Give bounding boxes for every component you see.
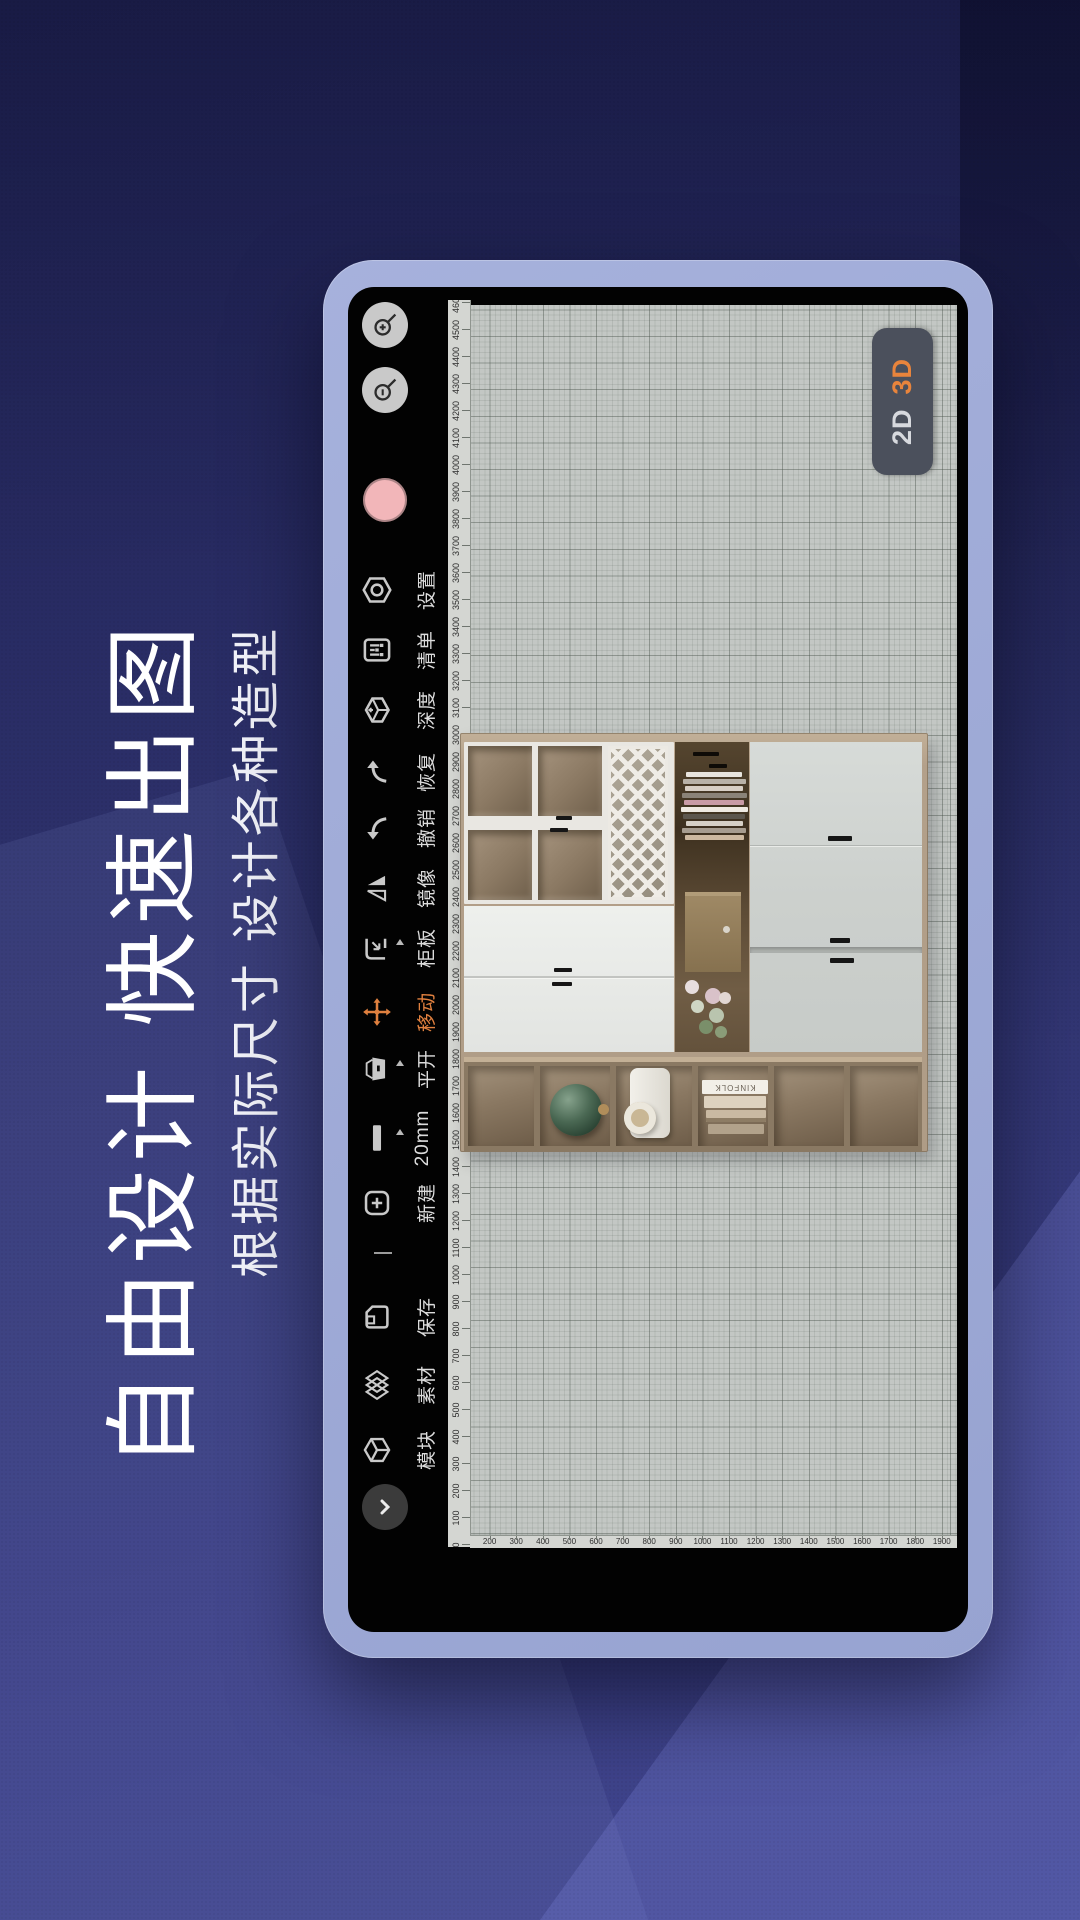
ruler-label: 4600 bbox=[451, 300, 461, 313]
door-handle bbox=[828, 836, 852, 841]
cabinet-white-doors bbox=[464, 906, 674, 1052]
ruler-tick bbox=[942, 1536, 943, 1540]
decor-tape-roll bbox=[624, 1102, 656, 1134]
ruler-label: 500 bbox=[451, 1402, 461, 1417]
ruler-tick bbox=[462, 329, 470, 330]
toolbar-item-mirror[interactable]: 镜像 bbox=[348, 855, 448, 921]
ruler-tick bbox=[462, 437, 470, 438]
ruler-tick bbox=[516, 1536, 517, 1540]
flower bbox=[719, 992, 731, 1004]
move-icon bbox=[362, 995, 396, 1029]
door-icon bbox=[362, 1052, 396, 1086]
undo-icon bbox=[362, 811, 396, 845]
redo-icon bbox=[362, 755, 396, 789]
depth-icon bbox=[362, 693, 396, 727]
ruler-tick bbox=[462, 491, 470, 492]
book-spine bbox=[685, 835, 744, 840]
book-spine bbox=[683, 814, 745, 819]
ruler-tick bbox=[862, 1536, 863, 1540]
decor-book: KINFOLK bbox=[702, 1080, 768, 1094]
open-compartment bbox=[468, 746, 532, 816]
ruler-label: 3200 bbox=[451, 671, 461, 691]
ruler-tick bbox=[462, 1382, 470, 1383]
closet-rail bbox=[693, 752, 719, 756]
ruler-tick bbox=[756, 1536, 757, 1540]
flower bbox=[709, 1008, 724, 1023]
hero-subtitle: 根据实际尺寸 设计各种造型 bbox=[228, 618, 286, 1278]
open-compartment bbox=[538, 746, 602, 816]
ruler-label: 3900 bbox=[451, 482, 461, 502]
toolbar-item-label: 平开 bbox=[412, 1049, 439, 1089]
ruler-tick bbox=[462, 1355, 470, 1356]
ruler-tick bbox=[649, 1536, 650, 1540]
layers-icon bbox=[362, 1368, 396, 1402]
ruler-tick bbox=[462, 626, 470, 627]
toolbar-item-list[interactable]: 清单 bbox=[348, 617, 448, 683]
cubby bbox=[850, 1066, 918, 1146]
door-handle bbox=[552, 982, 572, 986]
color-swatch[interactable] bbox=[363, 478, 407, 522]
toolbar-item-material[interactable]: 素材 bbox=[348, 1352, 448, 1418]
board-icon bbox=[362, 1121, 396, 1155]
toolbar-item-redo[interactable]: 恢复 bbox=[348, 739, 448, 805]
ruler-label: 100 bbox=[451, 1510, 461, 1525]
ruler-label: 4100 bbox=[451, 428, 461, 448]
toolbar-item-label: 设置 bbox=[412, 570, 439, 610]
book-spine bbox=[686, 821, 743, 826]
toolbar-item-label: 20mm bbox=[412, 1110, 434, 1167]
ruler-label: 0 bbox=[451, 1542, 461, 1547]
toolbar-item-label: 新建 bbox=[412, 1183, 439, 1223]
ruler-tick bbox=[462, 707, 470, 708]
ruler-label: 300 bbox=[451, 1456, 461, 1471]
expand-marker-icon bbox=[396, 939, 404, 945]
ruler-label: 3700 bbox=[451, 536, 461, 556]
view-mode-toggle[interactable]: 2D3D bbox=[872, 328, 933, 475]
ruler-tick bbox=[462, 1409, 470, 1410]
book-spine bbox=[681, 807, 748, 812]
drawer-knob bbox=[723, 926, 730, 933]
ruler-tick bbox=[809, 1536, 810, 1540]
ruler-tick bbox=[462, 464, 470, 465]
ruler-label: 3600 bbox=[451, 563, 461, 583]
ruler-tick bbox=[835, 1536, 836, 1540]
ruler-tick bbox=[596, 1536, 597, 1540]
toolbar-item-label: 保存 bbox=[412, 1297, 439, 1337]
ruler-tick bbox=[462, 599, 470, 600]
ruler-tick bbox=[462, 1301, 470, 1302]
zoom-in-button[interactable] bbox=[362, 302, 408, 348]
ruler-tick bbox=[462, 1274, 470, 1275]
ruler-label: 600 bbox=[451, 1375, 461, 1390]
ruler-label: 1300 bbox=[451, 1184, 461, 1204]
cabinet-upper-unit bbox=[464, 742, 674, 904]
ruler-tick bbox=[915, 1536, 916, 1540]
toolbar-item-move[interactable]: 移动 bbox=[348, 979, 448, 1045]
flower bbox=[691, 1000, 704, 1013]
toolbar-item-label: 清单 bbox=[412, 630, 439, 670]
door-handle bbox=[830, 938, 850, 943]
ruler-tick bbox=[462, 1166, 470, 1167]
ruler-label: 1100 bbox=[451, 1238, 461, 1257]
toolbar-item-label: 移动 bbox=[412, 992, 439, 1032]
ruler-label: 1200 bbox=[451, 1211, 461, 1231]
book-spine bbox=[684, 800, 744, 805]
floppy-icon bbox=[362, 1300, 396, 1334]
ruler-tick bbox=[462, 1544, 470, 1545]
flower bbox=[699, 1020, 713, 1034]
ruler-label: 3800 bbox=[451, 509, 461, 529]
panel-icon bbox=[362, 931, 396, 965]
ruler-label: 3300 bbox=[451, 644, 461, 664]
ruler-label: 400 bbox=[451, 1429, 461, 1444]
ruler-tick bbox=[462, 1517, 470, 1518]
toolbar-item-label: 镜像 bbox=[412, 868, 439, 908]
view-mode-2d[interactable]: 2D bbox=[887, 409, 918, 446]
ruler-label: 700 bbox=[451, 1348, 461, 1363]
toolbar-item-label: 深度 bbox=[412, 690, 439, 730]
settings-icon bbox=[362, 573, 396, 607]
ruler-tick bbox=[462, 572, 470, 573]
ruler-label: 200 bbox=[451, 1483, 461, 1498]
ruler-label: 4000 bbox=[451, 455, 461, 475]
flower bbox=[715, 1026, 727, 1038]
decor-book bbox=[704, 1096, 766, 1108]
ruler-tick bbox=[462, 410, 470, 411]
toolbar-item-new[interactable]: 新建 bbox=[348, 1170, 448, 1236]
toolbar-item-label: 柜板 bbox=[412, 928, 439, 968]
cabinet-render[interactable]: KINFOLK bbox=[460, 733, 928, 1152]
ruler-tick bbox=[543, 1536, 544, 1540]
ruler-label: 800 bbox=[451, 1321, 461, 1336]
toolbar-item-label: 恢复 bbox=[412, 752, 439, 792]
ruler-tick bbox=[889, 1536, 890, 1540]
hero-title: 自由设计 快速出图 bbox=[98, 533, 210, 1468]
ruler-tick bbox=[462, 545, 470, 546]
ruler-label: 4500 bbox=[451, 320, 461, 340]
expand-marker-icon bbox=[396, 1129, 404, 1135]
ruler-tick bbox=[462, 302, 470, 303]
ruler-tick bbox=[782, 1536, 783, 1540]
ruler-label: 4400 bbox=[451, 347, 461, 367]
phone-mockup: 0100200300400500600700800900100011001200… bbox=[323, 260, 993, 1658]
ruler-tick bbox=[462, 1328, 470, 1329]
ruler-label: 4200 bbox=[451, 401, 461, 421]
ruler-tick bbox=[490, 1536, 491, 1540]
door-divider bbox=[464, 976, 674, 978]
toolbar-group-divider bbox=[374, 1252, 392, 1254]
ruler-tick bbox=[623, 1536, 624, 1540]
collapse-toolbar-button[interactable] bbox=[362, 1484, 408, 1530]
book-spine bbox=[686, 772, 742, 777]
ruler-tick bbox=[569, 1536, 570, 1540]
list-icon bbox=[362, 633, 396, 667]
door-handle bbox=[830, 958, 854, 963]
ruler-tick bbox=[462, 1490, 470, 1491]
ruler-label: 1400 bbox=[451, 1157, 461, 1177]
view-mode-3d[interactable]: 3D bbox=[887, 358, 918, 395]
expand-marker-icon bbox=[396, 1060, 404, 1066]
mirror-icon bbox=[362, 871, 396, 905]
wardrobe-divider bbox=[750, 845, 922, 846]
toolbar-item-label: 素材 bbox=[412, 1365, 439, 1405]
app-screen: 0100200300400500600700800900100011001200… bbox=[348, 287, 968, 1632]
toolbar: 模块素材保存新建20mm平开移动柜板镜像撤销恢复深度清单设置 bbox=[348, 287, 448, 1632]
cabinet-open-middle bbox=[675, 742, 749, 1052]
decor-globe-stand bbox=[598, 1104, 609, 1115]
wine-lattice bbox=[608, 746, 668, 900]
canvas-top-margin bbox=[470, 287, 968, 305]
ruler-label: 900 bbox=[451, 1294, 461, 1309]
ruler-label: 3500 bbox=[451, 590, 461, 610]
open-compartment bbox=[468, 830, 532, 900]
cubby bbox=[774, 1066, 844, 1146]
ruler-tick bbox=[462, 518, 470, 519]
chevron-down-icon bbox=[372, 1494, 398, 1520]
door-handle bbox=[550, 828, 568, 832]
toolbar-item-swing-door[interactable]: 平开 bbox=[348, 1036, 448, 1102]
book-spine bbox=[682, 793, 747, 798]
ruler-tick bbox=[702, 1536, 703, 1540]
ruler-tick bbox=[462, 680, 470, 681]
ruler-tick bbox=[462, 1247, 470, 1248]
decor-book bbox=[708, 1124, 764, 1134]
ruler-label: 1000 bbox=[451, 1265, 461, 1285]
book-spine bbox=[683, 779, 746, 784]
ruler-tick bbox=[676, 1536, 677, 1540]
flower bbox=[685, 980, 699, 994]
toolbar-item-label: 模块 bbox=[412, 1430, 439, 1470]
closet-rail bbox=[709, 764, 727, 768]
open-compartment bbox=[538, 830, 602, 900]
door-handle bbox=[554, 968, 572, 972]
cubby bbox=[468, 1066, 534, 1146]
door-handle bbox=[556, 816, 572, 820]
toolbar-item-save[interactable]: 保存 bbox=[348, 1284, 448, 1350]
book-spine bbox=[685, 786, 743, 791]
toolbar-item-settings[interactable]: 设置 bbox=[348, 557, 448, 623]
ruler-tick bbox=[729, 1536, 730, 1540]
ruler-tick bbox=[462, 653, 470, 654]
ruler-label: 4300 bbox=[451, 374, 461, 394]
height-ruler: 1002003004005006007008009001000110012001… bbox=[470, 1535, 957, 1548]
plus-square-icon bbox=[362, 1186, 396, 1220]
cabinet-wardrobe bbox=[750, 742, 922, 1052]
wardrobe-divider bbox=[750, 947, 922, 953]
ruler-label: 3100 bbox=[451, 698, 461, 718]
ruler-tick bbox=[462, 1463, 470, 1464]
toolbar-item-thickness[interactable]: 20mm bbox=[348, 1105, 448, 1171]
toolbar-item-label: 撤销 bbox=[412, 808, 439, 848]
ruler-tick bbox=[462, 383, 470, 384]
inner-drawer bbox=[685, 892, 741, 972]
decor-book bbox=[706, 1110, 766, 1122]
zoom-out-button[interactable] bbox=[362, 367, 408, 413]
toolbar-item-module[interactable]: 模块 bbox=[348, 1417, 448, 1483]
cabinet-cubby-row: KINFOLK bbox=[464, 1057, 922, 1152]
ruler-tick bbox=[462, 1436, 470, 1437]
cube-icon bbox=[362, 1433, 396, 1467]
ruler-tick bbox=[462, 1193, 470, 1194]
ruler-tick bbox=[462, 356, 470, 357]
toolbar-item-panel[interactable]: 柜板 bbox=[348, 915, 448, 981]
ruler-label: 3400 bbox=[451, 617, 461, 637]
book-spine bbox=[682, 828, 746, 833]
decor-globe bbox=[550, 1084, 602, 1136]
ruler-tick bbox=[462, 1220, 470, 1221]
toolbar-item-depth[interactable]: 深度 bbox=[348, 677, 448, 743]
